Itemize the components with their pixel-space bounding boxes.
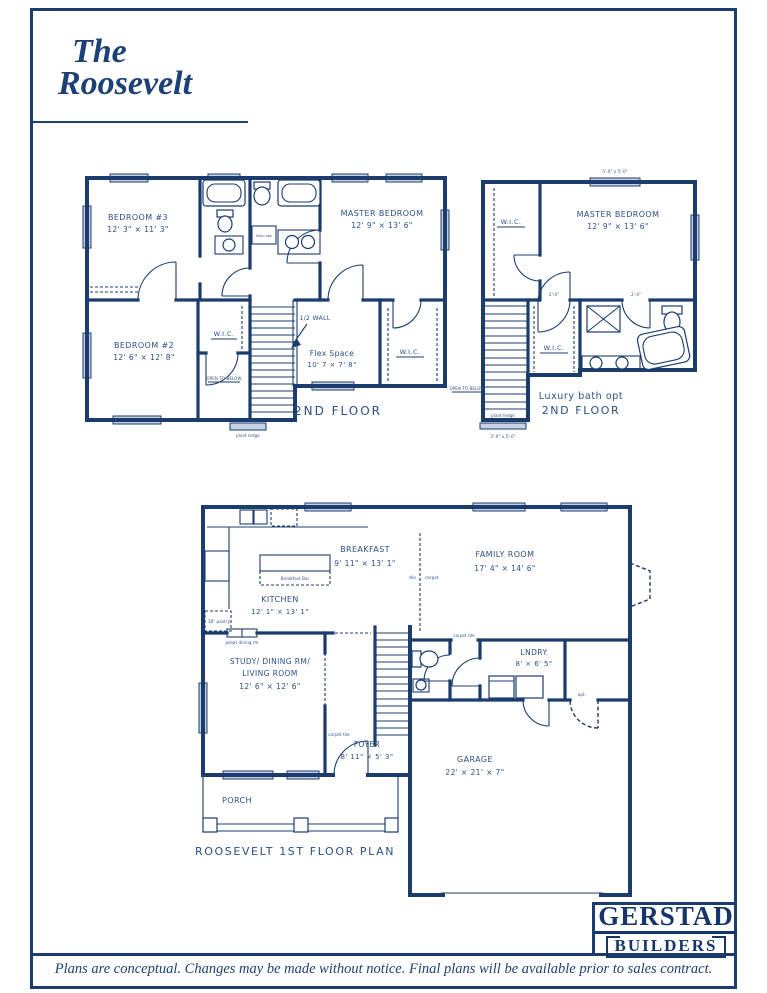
- kitchen-label: KITCHEN: [261, 595, 298, 604]
- first-floor-plan: BREAKFAST 9' 11" × 13' 1" KITCHEN 12' 1"…: [183, 493, 658, 905]
- builder-logo: GERSTAD BUILDERS: [592, 902, 737, 956]
- plan-title-line1: The: [58, 36, 192, 68]
- bath-fixtures: [412, 651, 438, 692]
- stove-icon: [271, 509, 297, 526]
- kitchen-dims: 12' 1" × 13' 1": [251, 608, 309, 616]
- flex-space-dims: 10' 7 × 7' 8": [307, 361, 356, 369]
- kitchen-fixtures: [205, 509, 368, 637]
- master-bedroom-dims: 12' 9" × 13' 6": [587, 222, 648, 231]
- breakfast-bar-island: [260, 555, 330, 571]
- linen-cab-label: linen cab: [256, 234, 271, 238]
- builder-logo-sub: BUILDERS: [615, 936, 718, 956]
- walls: [203, 507, 630, 895]
- wic2-label: W.I.C.: [400, 348, 421, 356]
- garage-dims: 22' × 21' × 7": [445, 768, 504, 777]
- opt-dining-label: w/opt dining rm: [225, 640, 258, 645]
- master-bedroom-label: MASTER BEDROOM: [341, 209, 424, 218]
- bedroom3-dims: 12' 3" × 11' 3": [107, 225, 168, 234]
- porch-post: [385, 818, 398, 832]
- study-label-line1: STUDY/ DINING RM/: [230, 657, 310, 666]
- study-dims: 12' 6" × 12' 6": [239, 682, 300, 691]
- breakfast-dims: 9' 11" × 13' 1": [334, 559, 395, 568]
- door-dim-label: 2'-4": [631, 292, 641, 297]
- labels: BREAKFAST 9' 11" × 13' 1" KITCHEN 12' 1"…: [195, 545, 586, 858]
- bath-fixtures: [203, 180, 320, 254]
- bathtub-icon: [636, 325, 690, 370]
- stairs: [483, 306, 528, 409]
- stairs: [375, 633, 410, 735]
- window-dim-label: 5'-0" x 5'-0": [602, 169, 627, 174]
- wic-bottom-label: W.I.C.: [544, 344, 565, 352]
- laundry-label: LNDRY: [521, 648, 548, 657]
- stairs: [250, 307, 295, 412]
- garage-label: GARAGE: [457, 755, 493, 764]
- opt-fireplace: [630, 563, 650, 607]
- fridge-icon: [205, 551, 229, 581]
- plant-ledge-shape: [230, 423, 266, 430]
- porch-post: [294, 818, 308, 832]
- family-room-dims: 17' 4" × 14' 6": [474, 564, 535, 573]
- breakfast-bar-label: Breakfast Bar: [281, 576, 310, 581]
- plan-title: The Roosevelt: [58, 36, 192, 101]
- pantry-label: 18" pantry: [208, 619, 231, 624]
- plant-ledge-label: plant ledge: [236, 433, 260, 438]
- bath-fixtures: [582, 306, 691, 371]
- plan-title-line2: Roosevelt: [58, 68, 192, 100]
- builder-logo-bracket: BUILDERS: [606, 936, 727, 959]
- wic-label: W.I.C.: [214, 330, 235, 338]
- study-label-line2: LIVING ROOM: [242, 669, 297, 678]
- opt-door-label: opt.: [578, 692, 586, 697]
- labels: BEDROOM #3 12' 3" × 11' 3" MASTER BEDROO…: [107, 209, 424, 438]
- foyer-label: FOYER: [354, 740, 380, 749]
- washer-icon: [489, 676, 514, 698]
- first-floor-caption: ROOSEVELT 1ST FLOOR PLAN: [195, 845, 395, 858]
- second-floor-caption: 2ND FLOOR: [294, 404, 382, 418]
- carpet-tile-label: carpet tile: [453, 633, 475, 638]
- tile-label: tile: [409, 575, 416, 580]
- breakfast-label: BREAKFAST: [340, 545, 390, 554]
- kitchen-sink-icon: [240, 510, 253, 524]
- luxury-bath-caption: Luxury bath opt: [539, 391, 624, 402]
- open-to-below-label: OPEN TO BELOW: [450, 386, 484, 391]
- carpet-tile-label: carpet tile: [328, 732, 350, 737]
- windows: [590, 178, 699, 260]
- half-wall-label: 1/2 WALL: [299, 315, 330, 322]
- disclaimer-text: Plans are conceptual. Changes may be mad…: [30, 961, 737, 978]
- title-underline: [33, 121, 248, 123]
- page: { "colors": { "wall": "#1b3c6d", "text":…: [0, 0, 767, 993]
- bedroom3-label: BEDROOM #3: [108, 213, 168, 222]
- doors: [514, 255, 650, 332]
- foyer-dims: 8' 11" × 5' 3": [341, 753, 394, 761]
- luxury-bath-plan: 5'-0" x 5'-0" MASTER BEDROOM 12' 9" × 13…: [450, 160, 700, 452]
- porch-label: PORCH: [222, 796, 252, 805]
- master-bedroom-label: MASTER BEDROOM: [577, 210, 660, 219]
- open-to-below-label: OPEN TO BELOW: [207, 376, 242, 381]
- carpet-label: carpet: [425, 575, 439, 580]
- wic-top-label: W.I.C.: [501, 218, 522, 226]
- porch-post: [203, 818, 217, 832]
- bedroom2-dims: 12' 6" × 12' 8": [113, 353, 174, 362]
- laundry-fixtures: [489, 676, 543, 698]
- second-floor-plan: BEDROOM #3 12' 3" × 11' 3" MASTER BEDROO…: [80, 168, 460, 440]
- master-bedroom-dims: 12' 9" × 13' 6": [351, 221, 412, 230]
- luxury-floor-caption: 2ND FLOOR: [542, 404, 621, 417]
- builder-logo-name: GERSTAD: [595, 903, 737, 934]
- bedroom2-label: BEDROOM #2: [114, 341, 174, 350]
- plant-ledge-label: plant ledge: [491, 413, 515, 418]
- plant-ledge-shape: [480, 423, 526, 429]
- laundry-dims: 8' × 6' 5": [516, 660, 553, 668]
- plant-ledge-dims: 3'-0" x 5'-0": [490, 434, 515, 439]
- dryer-icon: [516, 676, 543, 698]
- door-dim-label: 2'-4": [549, 292, 559, 297]
- flex-space-label: Flex Space: [310, 349, 355, 358]
- family-room-label: FAMILY ROOM: [476, 550, 535, 559]
